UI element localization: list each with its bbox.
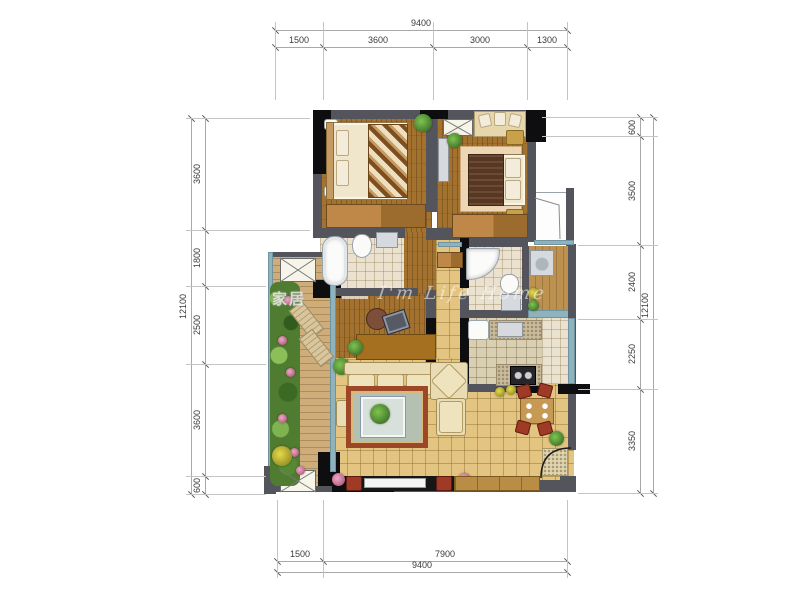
dim-line-right-total <box>653 117 654 493</box>
dim-extension <box>542 117 658 118</box>
bedside-stool <box>506 130 524 145</box>
dim-label-bottom-seg-1: 7900 <box>423 549 467 559</box>
dark-quilt <box>468 154 504 206</box>
flower <box>286 368 295 377</box>
bed-blanket <box>368 124 408 198</box>
dim-extension <box>186 230 310 231</box>
dim-label-right-seg-2: 2400 <box>627 260 639 304</box>
dim-extension <box>323 500 324 578</box>
pillow <box>336 130 349 156</box>
dim-label-left-seg-0: 3600 <box>192 152 204 196</box>
shoe-cabinet <box>454 476 540 491</box>
potted-plant <box>370 404 390 424</box>
headboard <box>326 122 334 200</box>
wall <box>426 119 437 212</box>
dim-line-left-seg <box>205 118 206 494</box>
hall-cabinet <box>437 252 463 268</box>
side-cabinet <box>436 476 452 491</box>
dim-extension <box>186 286 266 287</box>
dim-extension <box>186 494 266 495</box>
dim-label-left-total-0: 12100 <box>178 284 190 328</box>
wardrobe <box>326 204 426 228</box>
dim-label-top-seg-0: 1500 <box>277 35 321 45</box>
dim-line-top-seg <box>275 47 567 48</box>
dim-extension <box>567 22 568 100</box>
floor-plan-canvas: 9400150036003000130015007900940012100360… <box>0 0 800 600</box>
wall <box>528 142 536 242</box>
potted-plant <box>348 340 363 355</box>
wardrobe <box>452 214 528 238</box>
dim-line-bottom-total <box>277 572 567 573</box>
dim-extension <box>578 245 658 246</box>
dim-label-right-seg-1: 3500 <box>627 169 639 213</box>
dim-extension <box>527 22 528 100</box>
dim-label-right-total-0: 12100 <box>640 283 652 327</box>
bedroom2-door-glass <box>438 242 462 247</box>
dim-label-bottom-seg-0: 1500 <box>278 549 322 559</box>
flower <box>278 414 287 423</box>
dim-extension <box>433 22 434 100</box>
wall <box>568 394 576 450</box>
entry-doormat <box>542 448 568 476</box>
wash-basin <box>376 232 398 248</box>
pillow <box>505 180 521 200</box>
dim-extension <box>542 136 658 137</box>
dim-extension <box>323 22 324 100</box>
washing-machine <box>530 250 554 276</box>
flower <box>278 336 287 345</box>
dim-label-left-seg-2: 2500 <box>192 303 204 347</box>
dim-extension <box>277 500 278 578</box>
dim-label-left-seg-3: 3600 <box>192 398 204 442</box>
dim-extension <box>578 319 658 320</box>
kitchen-sink <box>497 322 523 337</box>
dim-extension <box>275 22 276 100</box>
side-cabinet <box>346 476 362 491</box>
potted-plant <box>414 114 432 132</box>
flower-pot <box>495 387 505 397</box>
dim-label-top-seg-1: 3600 <box>356 35 400 45</box>
dim-label-right-seg-3: 2250 <box>627 332 639 376</box>
television <box>364 478 426 488</box>
flower-pot <box>506 385 516 395</box>
cooktop <box>510 366 536 385</box>
pillow <box>505 158 521 178</box>
dim-extension <box>186 476 266 477</box>
flower <box>296 466 305 475</box>
wall <box>466 310 528 318</box>
watermark-script: I'm Life Home <box>377 283 549 304</box>
pillow <box>494 112 506 126</box>
dim-label-top-seg-3: 1300 <box>525 35 569 45</box>
dim-line-top-total <box>275 30 567 31</box>
shaft-box <box>280 258 316 282</box>
wall <box>466 238 528 247</box>
dim-label-bottom-total-0: 9400 <box>400 560 444 570</box>
potted-plant <box>549 431 564 446</box>
bush <box>272 446 292 466</box>
pillow <box>478 113 492 128</box>
column <box>526 110 546 142</box>
dim-label-top-total-0: 9400 <box>399 18 443 28</box>
bathtub <box>322 236 348 286</box>
dim-extension <box>578 493 658 494</box>
bay-window <box>568 318 575 384</box>
ac-window <box>534 240 574 245</box>
flower-pot <box>332 473 345 486</box>
watermark-dash <box>342 296 368 299</box>
pillow <box>336 160 349 186</box>
dim-label-right-seg-4: 3350 <box>627 419 639 463</box>
dim-label-right-seg-0: 600 <box>627 105 639 149</box>
dim-label-left-seg-4: 600 <box>192 463 204 507</box>
wall <box>566 188 574 246</box>
dim-label-left-seg-1: 1800 <box>192 236 204 280</box>
watermark-cjk: 家居 <box>272 288 306 309</box>
dim-label-top-seg-2: 3000 <box>458 35 502 45</box>
wall <box>313 174 322 234</box>
fridge <box>468 320 489 340</box>
study-desk <box>356 334 436 360</box>
toilet <box>352 234 372 258</box>
dim-extension <box>186 364 266 365</box>
dim-extension <box>567 500 568 578</box>
dim-extension <box>186 118 310 119</box>
sofa-cushion <box>439 401 463 433</box>
dim-extension <box>578 389 658 390</box>
